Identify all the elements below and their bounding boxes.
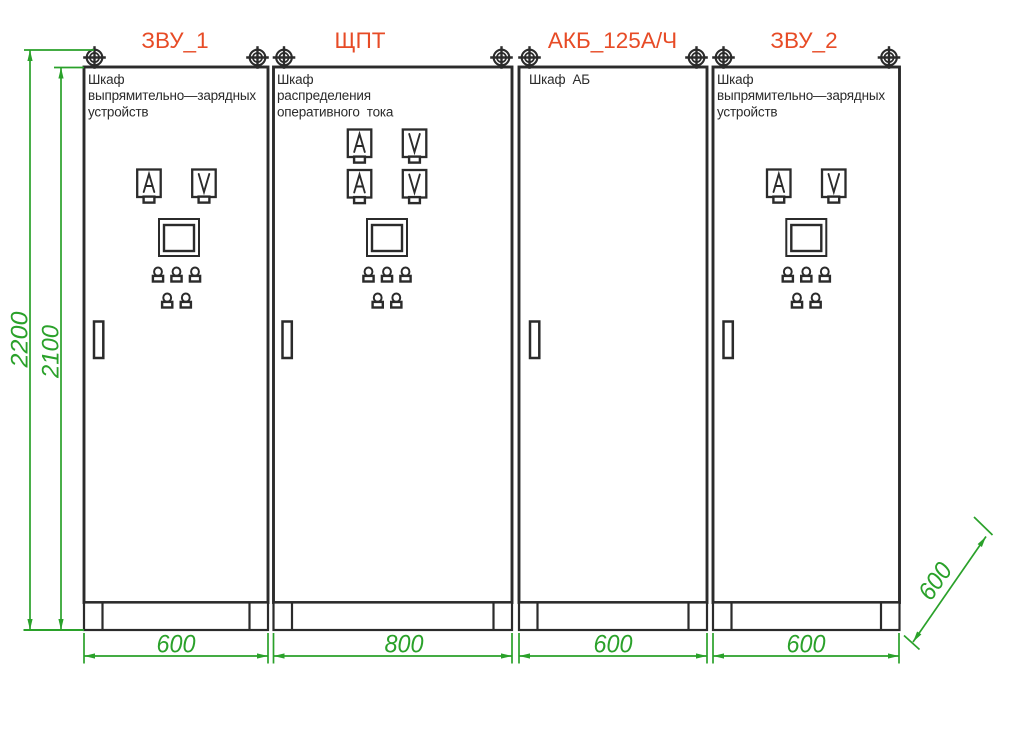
svg-text:ЗВУ_2: ЗВУ_2	[770, 28, 837, 53]
svg-text:Шкаф АБ: Шкаф АБ	[529, 72, 590, 87]
svg-text:600: 600	[787, 631, 826, 659]
svg-text:ЗВУ_1: ЗВУ_1	[141, 28, 208, 53]
svg-text:2100: 2100	[38, 324, 65, 379]
svg-text:АКБ_125А/Ч: АКБ_125А/Ч	[548, 28, 677, 53]
svg-text:800: 800	[385, 631, 424, 659]
svg-text:600: 600	[157, 631, 196, 659]
svg-text:ЩПТ: ЩПТ	[334, 28, 385, 53]
svg-text:2200: 2200	[7, 311, 34, 369]
svg-text:600: 600	[594, 631, 633, 659]
